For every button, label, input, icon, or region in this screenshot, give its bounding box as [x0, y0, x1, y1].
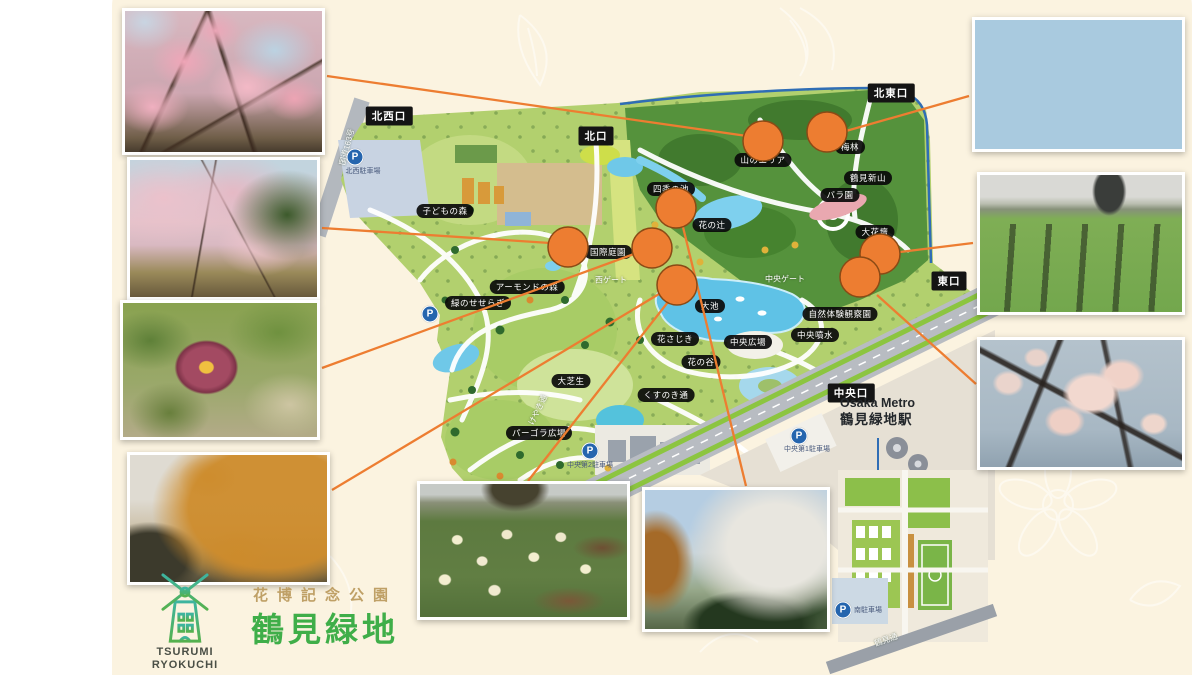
- spot-marker: [632, 228, 672, 268]
- photo-red-plum-grove: [972, 17, 1185, 152]
- photo-blossom-tree: [642, 487, 830, 632]
- spot-marker: [743, 121, 783, 161]
- spot-marker: [548, 227, 588, 267]
- photo-flower-field-windmill: [977, 172, 1185, 315]
- connector-line: [877, 295, 976, 384]
- connector-line: [322, 228, 550, 243]
- photo-kawazu-cherry-closeup: [122, 8, 325, 155]
- logo-jp-large: 鶴見緑地: [251, 603, 471, 651]
- spot-marker: [840, 257, 880, 297]
- photo-witch-hazel: [127, 452, 330, 585]
- logo-en-line2: RYOKUCHI: [125, 659, 245, 672]
- connector-line: [683, 227, 746, 486]
- logo-english: TSURUMI RYOKUCHI: [125, 646, 245, 672]
- connector-line: [528, 302, 668, 481]
- photo-christmas-rose: [120, 300, 320, 440]
- connector-line: [332, 294, 659, 490]
- logo-en-line1: TSURUMI: [125, 646, 245, 659]
- park-logo: TSURUMI RYOKUCHI 花博記念公園 鶴見緑地: [115, 570, 445, 670]
- connector-line: [846, 96, 969, 131]
- spot-marker: [807, 112, 847, 152]
- connector-line: [900, 243, 973, 252]
- connector-line: [322, 254, 634, 368]
- photo-white-plum-closeup: [977, 337, 1185, 470]
- spot-marker: [656, 188, 696, 228]
- photo-cherry-trees: [127, 157, 320, 300]
- logo-jp-small: 花博記念公園: [253, 584, 453, 605]
- flower-map-page: 北西口北口北東口東口中央口子どもの森アーモンドの森緑のせせらぎ大芝生パーゴラ広場…: [0, 0, 1200, 675]
- connector-line: [327, 76, 747, 136]
- spot-marker: [657, 265, 697, 305]
- windmill-icon: [147, 570, 223, 646]
